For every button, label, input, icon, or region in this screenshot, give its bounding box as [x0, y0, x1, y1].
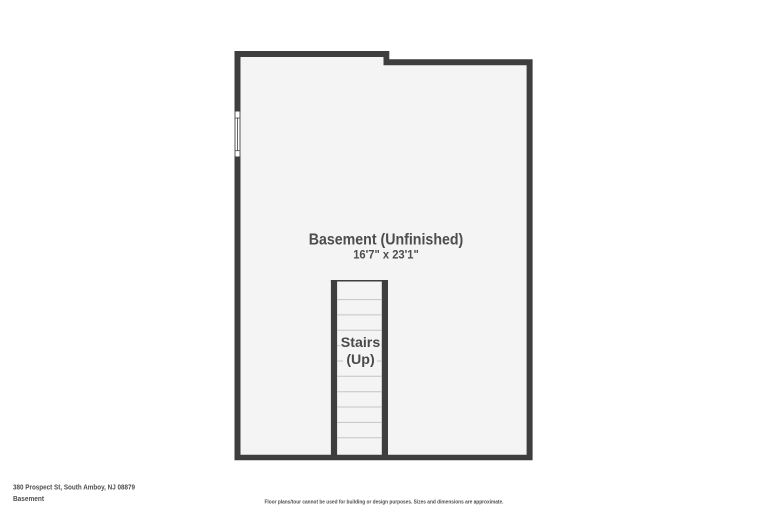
svg-text:Basement (Unfinished): Basement (Unfinished) [309, 232, 464, 249]
svg-text:(Up): (Up) [346, 352, 375, 368]
svg-text:Basement: Basement [13, 494, 44, 503]
svg-text:16'7" x 23'1": 16'7" x 23'1" [353, 249, 419, 261]
svg-text:380 Prospect St, South Amboy,: 380 Prospect St, South Amboy, NJ 08879 [13, 482, 135, 491]
svg-text:Floor plans/tour cannot be use: Floor plans/tour cannot be used for buil… [265, 499, 504, 505]
svg-text:Stairs: Stairs [341, 335, 381, 351]
